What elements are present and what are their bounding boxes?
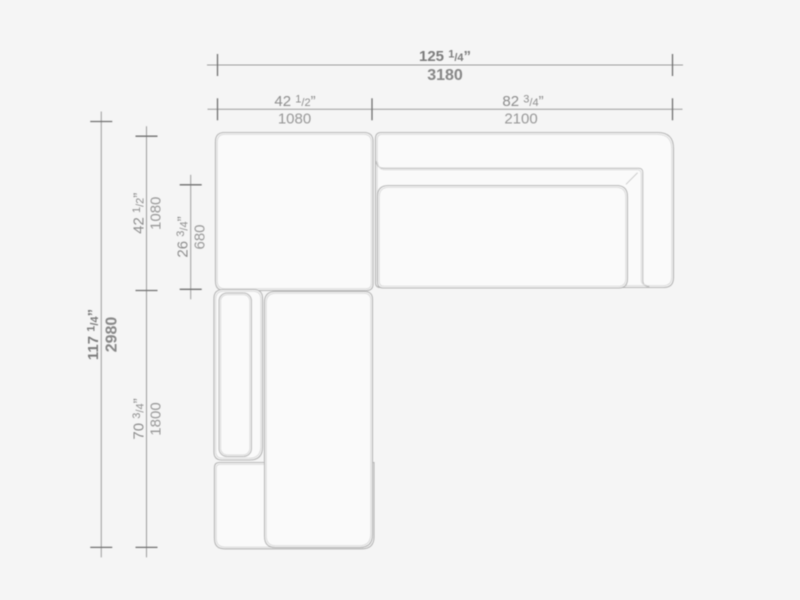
svg-text:2980: 2980	[103, 317, 120, 353]
svg-text:117 1/4”: 117 1/4”	[85, 309, 102, 360]
svg-text:125 1/4”: 125 1/4”	[419, 48, 471, 65]
svg-text:1800: 1800	[148, 402, 165, 435]
svg-text:3180: 3180	[427, 67, 463, 84]
svg-text:680: 680	[192, 224, 209, 249]
svg-text:2100: 2100	[504, 110, 537, 127]
svg-text:1080: 1080	[148, 197, 165, 230]
svg-text:1080: 1080	[278, 110, 311, 127]
